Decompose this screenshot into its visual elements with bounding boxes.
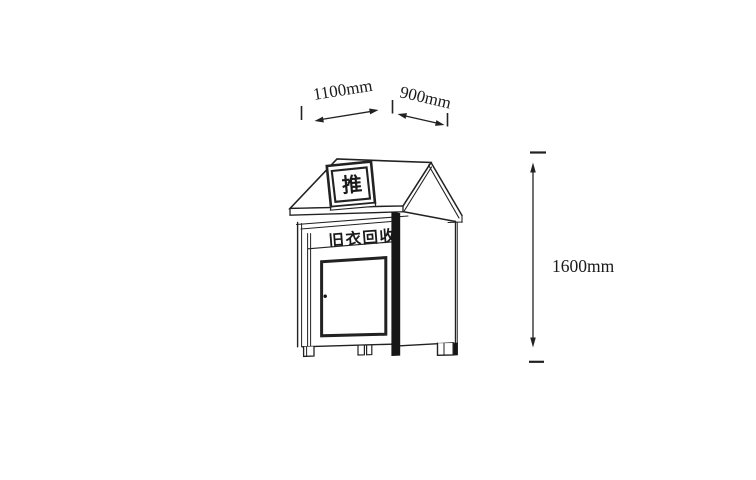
width-dimension-label: 1100mm bbox=[312, 76, 374, 104]
gable-right-edge-inner bbox=[429, 165, 460, 218]
collection-door bbox=[322, 258, 386, 336]
front-face: 旧衣回收 bbox=[298, 223, 398, 357]
width-arrowhead-right bbox=[369, 109, 378, 115]
push-sign-label: 推 bbox=[341, 172, 363, 198]
height-arrowhead-bottom bbox=[530, 338, 536, 348]
front-bottom-edge bbox=[302, 344, 392, 347]
width-arrow-line bbox=[318, 111, 375, 120]
roof bbox=[290, 159, 462, 229]
door-handle bbox=[324, 295, 327, 298]
roof-soffit-line bbox=[297, 216, 409, 225]
height-dimension-label: 1600mm bbox=[552, 256, 615, 276]
gable-base-line bbox=[403, 212, 456, 222]
height-dimension-annotation: 1600mm bbox=[529, 153, 615, 362]
width-arrowhead-left bbox=[315, 117, 324, 123]
gable-right-edge-outer bbox=[431, 163, 462, 216]
technical-drawing: 1100mm 900mm 1600mm bbox=[0, 0, 756, 480]
depth-arrowhead-right bbox=[435, 120, 445, 126]
depth-arrowhead-left bbox=[398, 113, 408, 119]
front-right-corner-post bbox=[392, 212, 400, 356]
height-arrowhead-top bbox=[530, 163, 536, 173]
front-middle-foot-a bbox=[358, 346, 364, 355]
right-foot bbox=[438, 343, 454, 355]
depth-dimension-label: 900mm bbox=[398, 82, 453, 112]
depth-arrow-line bbox=[400, 115, 442, 125]
push-sign-panel: 推 bbox=[327, 162, 376, 211]
front-left-foot bbox=[304, 347, 314, 357]
right-face bbox=[400, 222, 458, 356]
depth-dimension-annotation: 900mm bbox=[398, 82, 453, 126]
width-dimension-annotation: 1100mm bbox=[302, 76, 393, 123]
drawing-canvas: 1100mm 900mm 1600mm bbox=[0, 0, 756, 480]
front-middle-foot-b bbox=[367, 346, 372, 355]
recycling-bin-drawing: 推 旧衣回收 bbox=[290, 159, 462, 356]
